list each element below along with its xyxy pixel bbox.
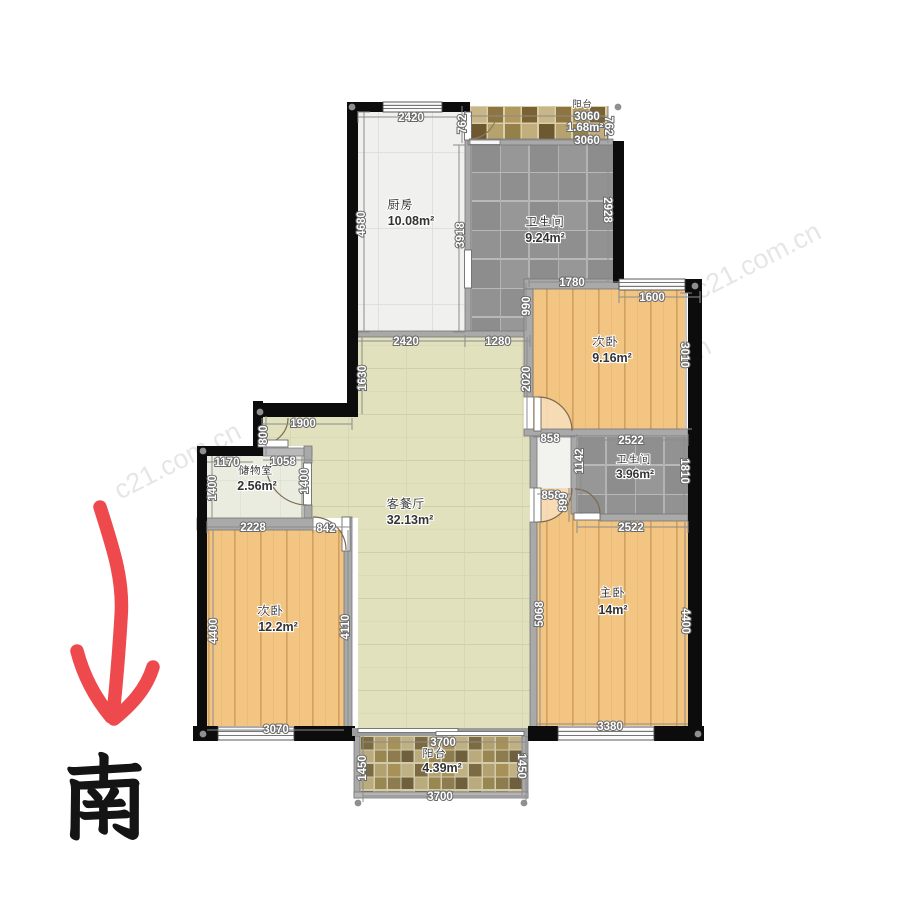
svg-text:1.68m²: 1.68m² xyxy=(567,122,604,134)
svg-text:3700: 3700 xyxy=(427,791,453,803)
svg-text:4400: 4400 xyxy=(208,618,220,644)
svg-text:858: 858 xyxy=(540,433,560,445)
svg-text:3060: 3060 xyxy=(574,135,600,147)
svg-text:2420: 2420 xyxy=(393,336,419,348)
svg-text:1810: 1810 xyxy=(678,458,690,484)
svg-text:4110: 4110 xyxy=(340,615,352,640)
svg-text:2228: 2228 xyxy=(240,522,266,534)
svg-text:1600: 1600 xyxy=(639,292,665,304)
svg-text:2420: 2420 xyxy=(398,112,424,124)
svg-text:762: 762 xyxy=(602,116,614,135)
svg-text:2020: 2020 xyxy=(521,366,533,392)
svg-text:4400: 4400 xyxy=(679,608,691,634)
svg-text:1400: 1400 xyxy=(299,468,311,494)
svg-text:1058: 1058 xyxy=(270,456,296,468)
svg-text:1450: 1450 xyxy=(357,755,369,781)
svg-text:1142: 1142 xyxy=(574,449,586,474)
svg-text:3070: 3070 xyxy=(263,724,289,736)
svg-text:1450: 1450 xyxy=(515,753,527,779)
svg-text:4.39m²: 4.39m² xyxy=(422,761,462,775)
svg-text:5068: 5068 xyxy=(534,601,546,627)
svg-text:4680: 4680 xyxy=(356,211,368,237)
svg-text:1170: 1170 xyxy=(215,457,240,469)
svg-text:3.96m²: 3.96m² xyxy=(616,467,654,481)
svg-text:1400: 1400 xyxy=(207,475,219,501)
svg-text:2522: 2522 xyxy=(618,522,644,534)
svg-text:762: 762 xyxy=(457,114,469,133)
svg-text:12.2m²: 12.2m² xyxy=(258,620,298,634)
svg-text:2.56m²: 2.56m² xyxy=(237,479,277,493)
svg-text:10.08m²: 10.08m² xyxy=(388,214,435,228)
svg-text:899: 899 xyxy=(558,492,570,511)
svg-text:800: 800 xyxy=(258,425,270,444)
svg-text:1630: 1630 xyxy=(357,365,369,391)
svg-text:1900: 1900 xyxy=(290,418,316,430)
svg-text:990: 990 xyxy=(521,296,533,315)
svg-text:9.24m²: 9.24m² xyxy=(525,231,565,245)
svg-text:14m²: 14m² xyxy=(598,603,627,617)
svg-text:1780: 1780 xyxy=(559,277,585,289)
svg-text:1280: 1280 xyxy=(485,336,511,348)
svg-text:2928: 2928 xyxy=(601,197,613,223)
svg-text:3380: 3380 xyxy=(597,721,623,733)
svg-text:3700: 3700 xyxy=(430,737,456,749)
svg-text:3010: 3010 xyxy=(678,342,690,368)
svg-text:3918: 3918 xyxy=(455,222,467,248)
svg-text:842: 842 xyxy=(316,523,335,535)
svg-text:9.16m²: 9.16m² xyxy=(592,351,632,365)
svg-text:32.13m²: 32.13m² xyxy=(387,513,434,527)
svg-text:2522: 2522 xyxy=(618,435,644,447)
